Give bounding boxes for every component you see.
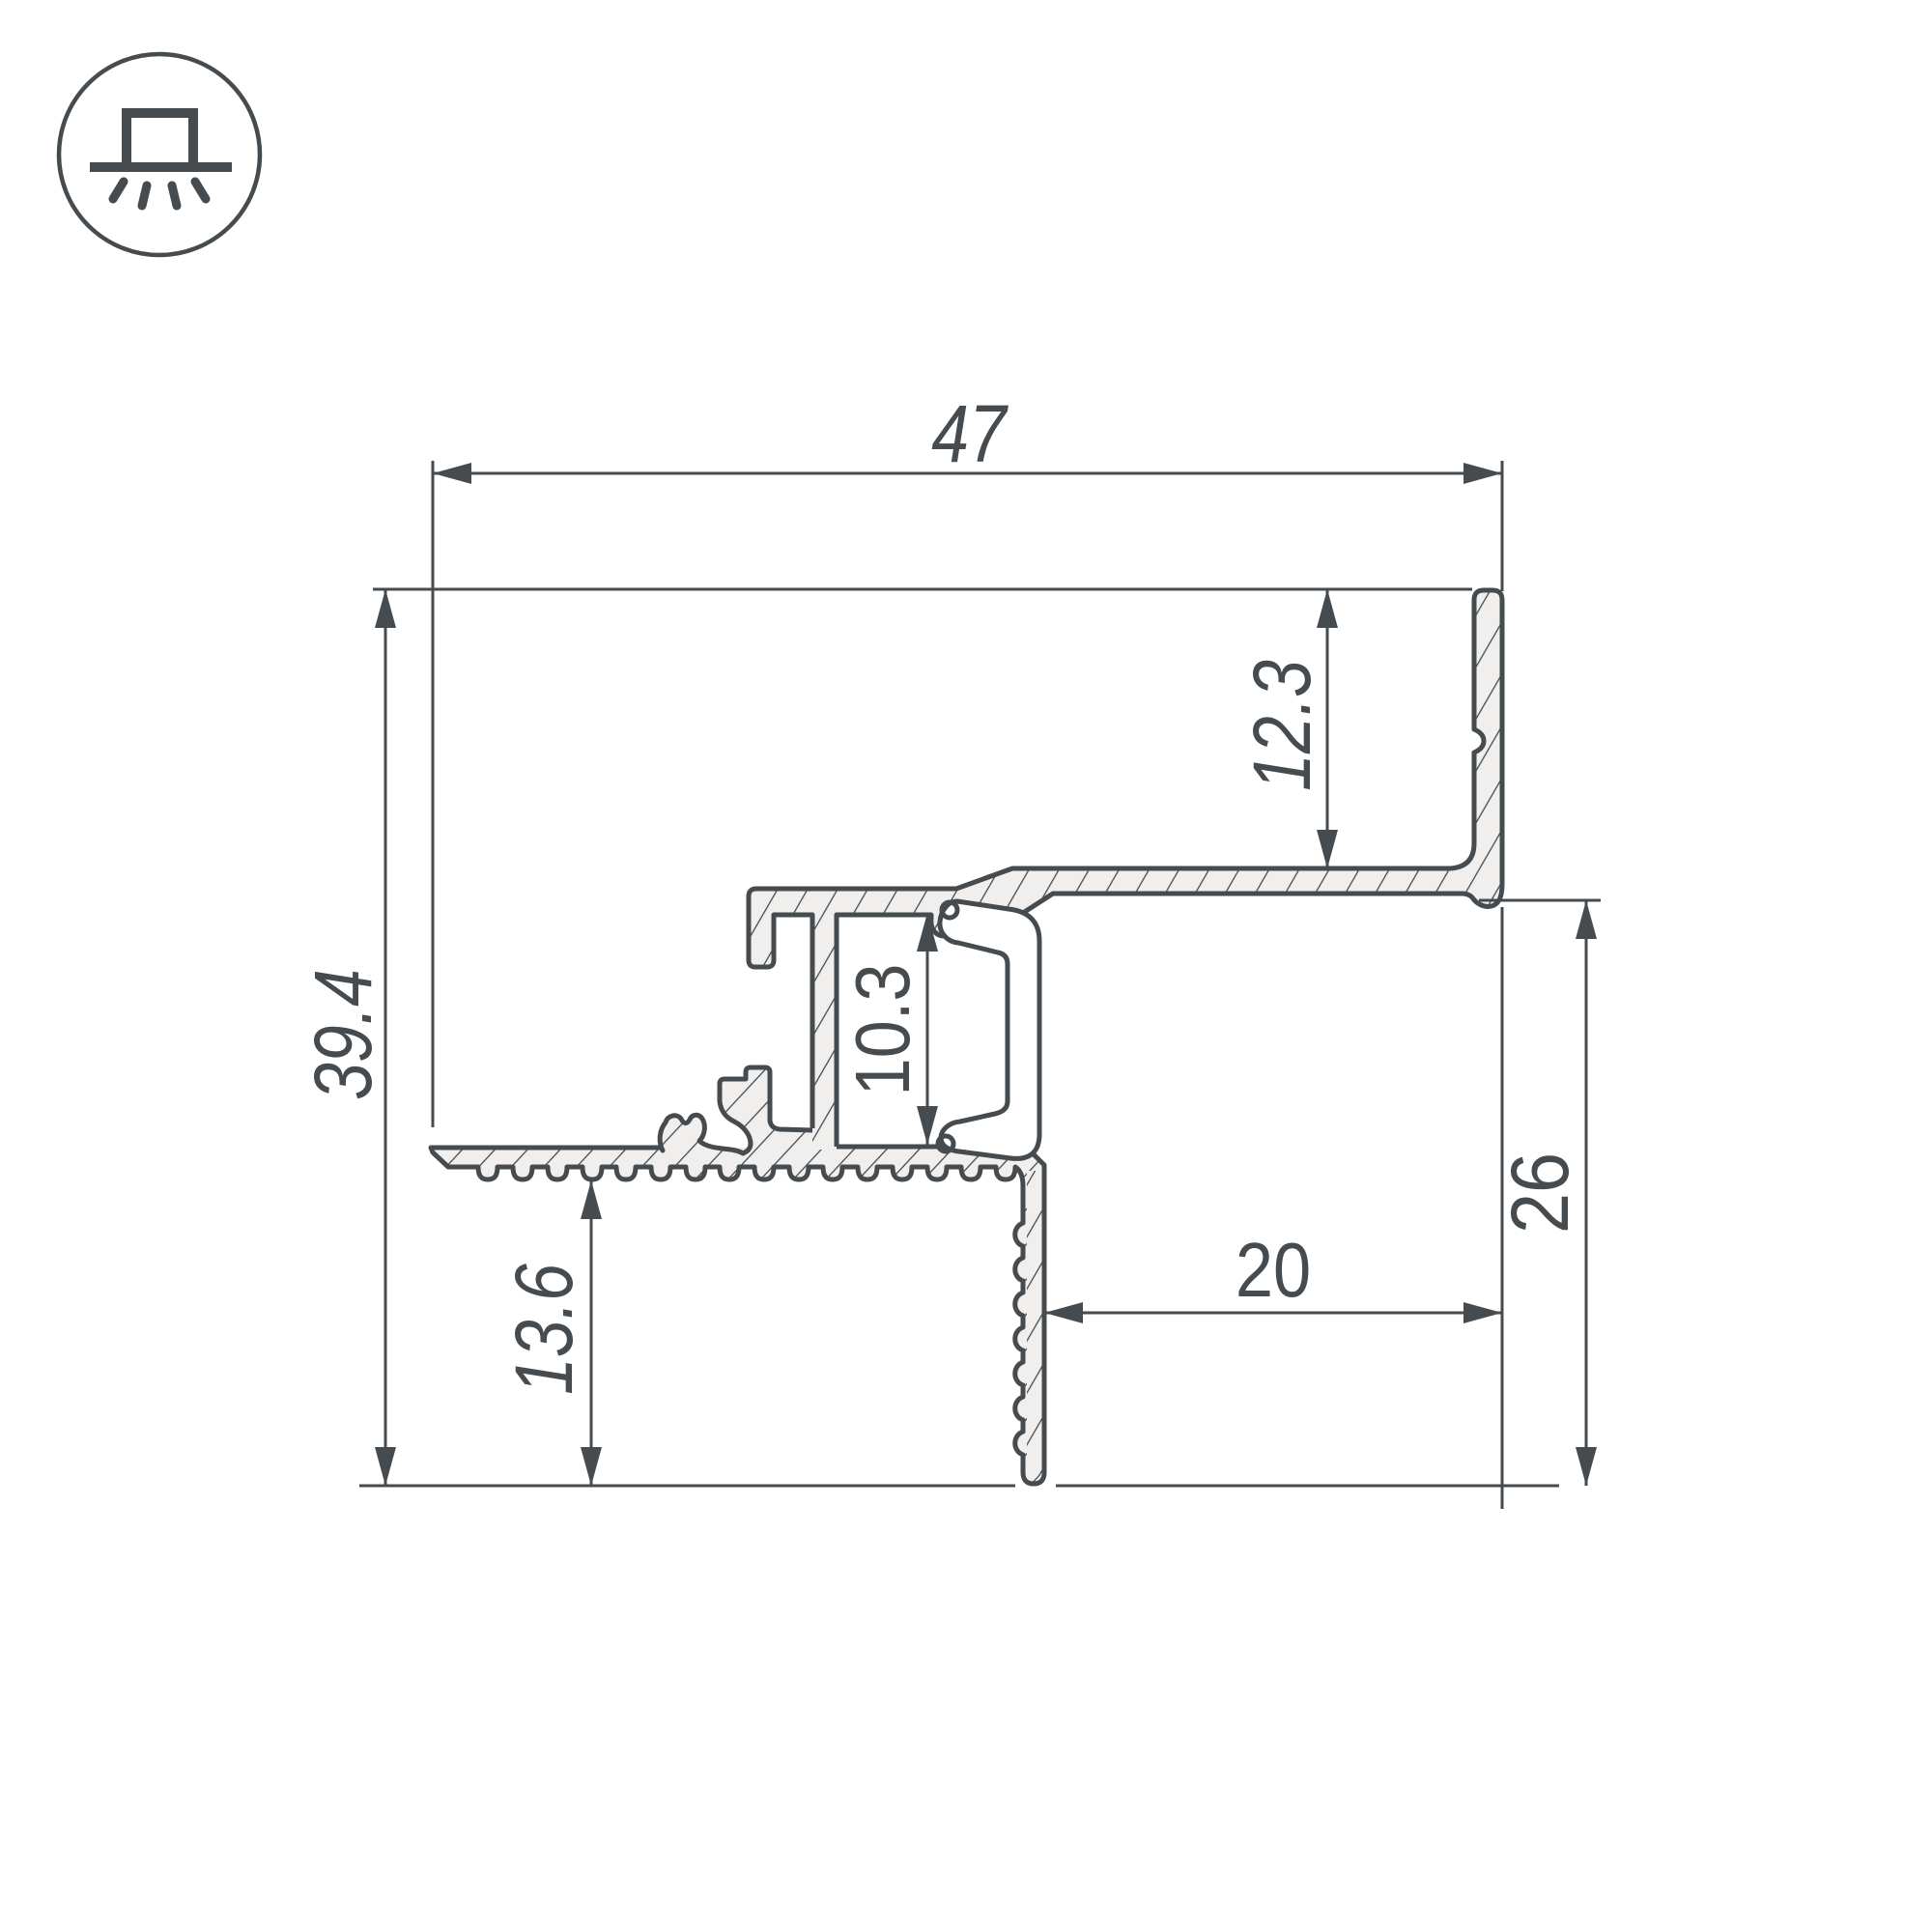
- svg-text:26: 26: [1494, 1152, 1585, 1234]
- svg-text:12.3: 12.3: [1237, 660, 1328, 791]
- svg-text:13.6: 13.6: [499, 1264, 590, 1395]
- svg-text:47: 47: [931, 389, 1009, 480]
- svg-text:20: 20: [1236, 1227, 1311, 1313]
- svg-text:10.3: 10.3: [839, 963, 925, 1095]
- svg-text:39.4: 39.4: [298, 969, 389, 1100]
